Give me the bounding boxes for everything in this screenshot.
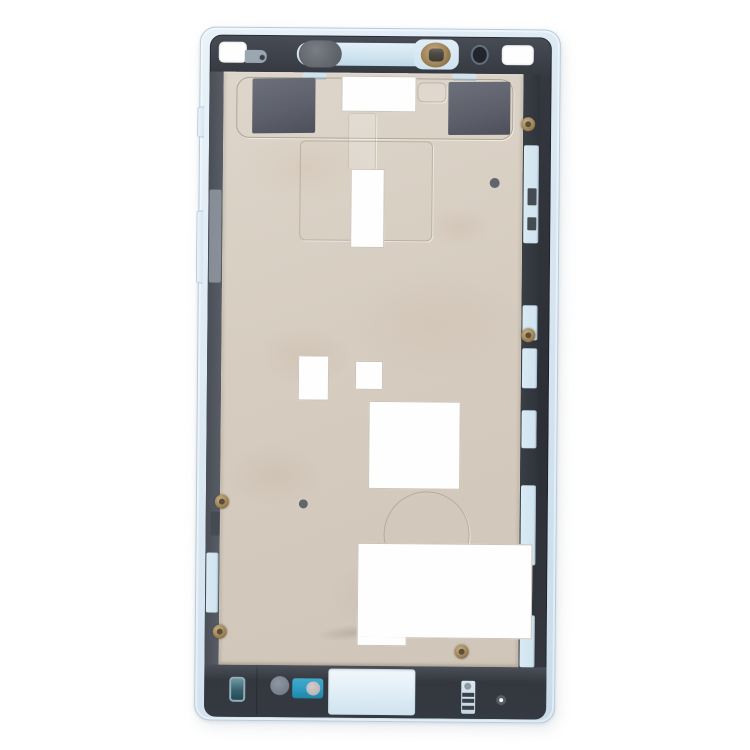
mid-cutout-large: [368, 401, 461, 490]
product-photo-canvas: [0, 0, 750, 750]
proximity-sensor-hole: [471, 45, 489, 65]
left-rail-blue-segment: [206, 553, 219, 613]
bottom-cutout-step: [357, 637, 407, 646]
screw-left-upper: [215, 495, 229, 509]
top-center-cutout: [341, 76, 416, 113]
earpiece-mesh: [299, 40, 342, 67]
mid-cutout-small: [355, 361, 383, 390]
alignment-dot-lower: [299, 499, 308, 508]
top-left-corner-cutout: [219, 42, 247, 63]
front-camera-lens: [429, 48, 444, 61]
microphone-hole: [270, 676, 289, 695]
connector-pin-dot: [464, 683, 471, 690]
tab-hole: [259, 54, 266, 61]
side-tab-lower: [196, 210, 204, 283]
spring-contact-connector: [461, 681, 475, 714]
phone-middle-frame: [194, 26, 561, 723]
side-tab-upper: [197, 106, 204, 137]
screw-core: [219, 499, 225, 505]
right-rail-blue-segment: [522, 348, 537, 388]
bottom-large-cutout: [357, 543, 533, 640]
mid-cutout-left: [298, 355, 329, 400]
connector-bar: [462, 706, 474, 710]
loudspeaker-opening: [328, 669, 415, 716]
right-rail-slot-upper: [527, 188, 536, 205]
vertical-cutout: [350, 169, 385, 248]
left-rail-segment: [209, 190, 222, 283]
screw-core: [217, 629, 223, 635]
connector-bar: [462, 699, 474, 703]
screw-core: [459, 649, 465, 655]
screw-core: [525, 332, 531, 338]
screw-bottom-right: [455, 645, 469, 659]
antenna-patch-left: [252, 78, 315, 134]
screw-top-right: [521, 117, 535, 131]
alignment-dot-upper: [490, 178, 500, 188]
screw-core: [525, 121, 531, 127]
screw-left-lower: [213, 625, 227, 639]
ringed-screw-hole: [496, 695, 506, 705]
top-right-corner-cutout: [502, 45, 534, 65]
port-roller: [306, 681, 320, 695]
right-rail-blue-segment: [521, 410, 536, 448]
connector-bar: [462, 693, 474, 697]
left-rail-slot: [211, 512, 220, 536]
jack-cutout: [229, 677, 245, 702]
antenna-patch-right: [448, 82, 510, 135]
emboss-tab: [417, 82, 446, 102]
screw-mid-right: [521, 328, 535, 342]
right-rail-slot-lower: [527, 217, 536, 230]
